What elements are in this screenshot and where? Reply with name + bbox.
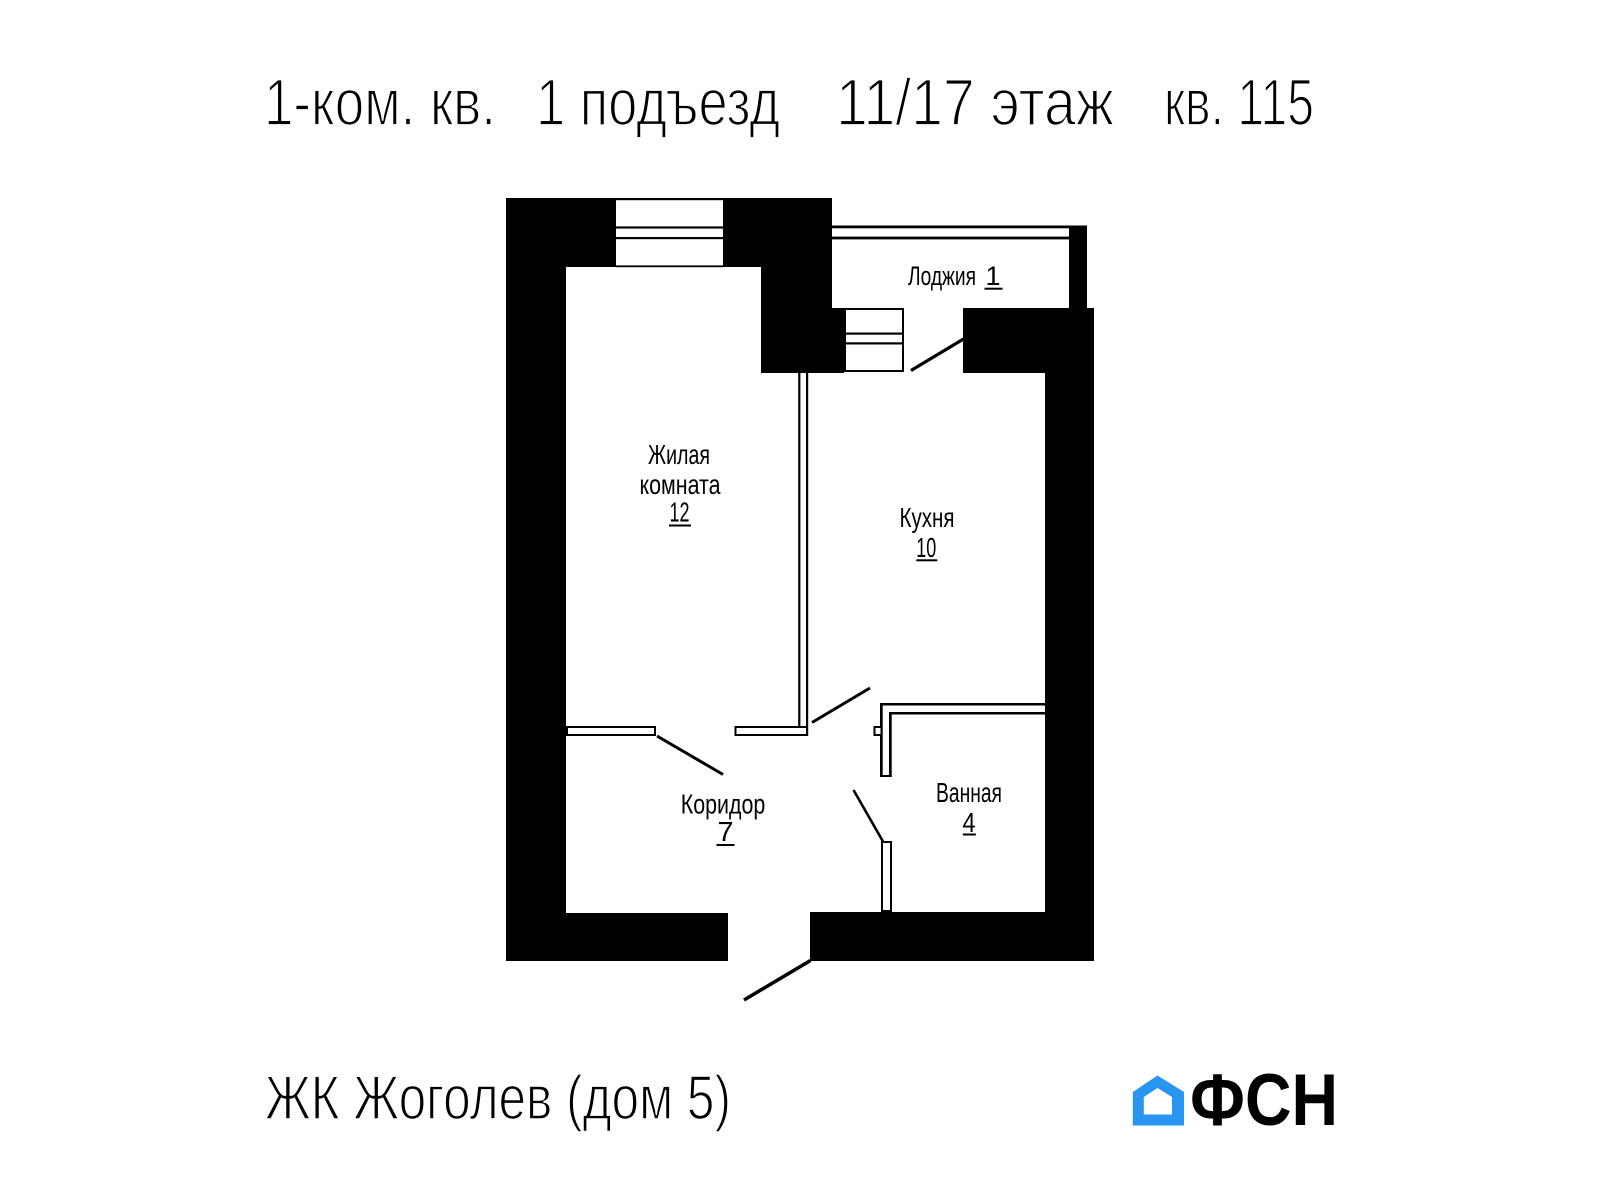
svg-text:Кухня: Кухня <box>900 502 955 533</box>
svg-text:12: 12 <box>670 497 690 528</box>
svg-text:Ванная: Ванная <box>936 777 1002 808</box>
svg-text:кв. 115: кв. 115 <box>1164 65 1314 139</box>
svg-text:11/17 этаж: 11/17 этаж <box>836 65 1114 139</box>
svg-text:1 подъезд: 1 подъезд <box>536 65 780 139</box>
svg-text:7: 7 <box>718 816 734 847</box>
svg-text:Коридор: Коридор <box>681 789 766 820</box>
svg-text:комната: комната <box>640 469 721 500</box>
svg-text:4: 4 <box>963 807 976 838</box>
svg-text:Лоджия: Лоджия <box>908 261 976 291</box>
svg-text:10: 10 <box>916 532 936 563</box>
svg-text:Жилая: Жилая <box>648 439 710 470</box>
svg-text:1-ком. кв.: 1-ком. кв. <box>264 65 496 139</box>
svg-text:1: 1 <box>985 261 1000 291</box>
svg-text:ФСН: ФСН <box>1190 1060 1338 1141</box>
svg-text:ЖК Жоголев (дом 5): ЖК Жоголев (дом 5) <box>265 1064 731 1133</box>
